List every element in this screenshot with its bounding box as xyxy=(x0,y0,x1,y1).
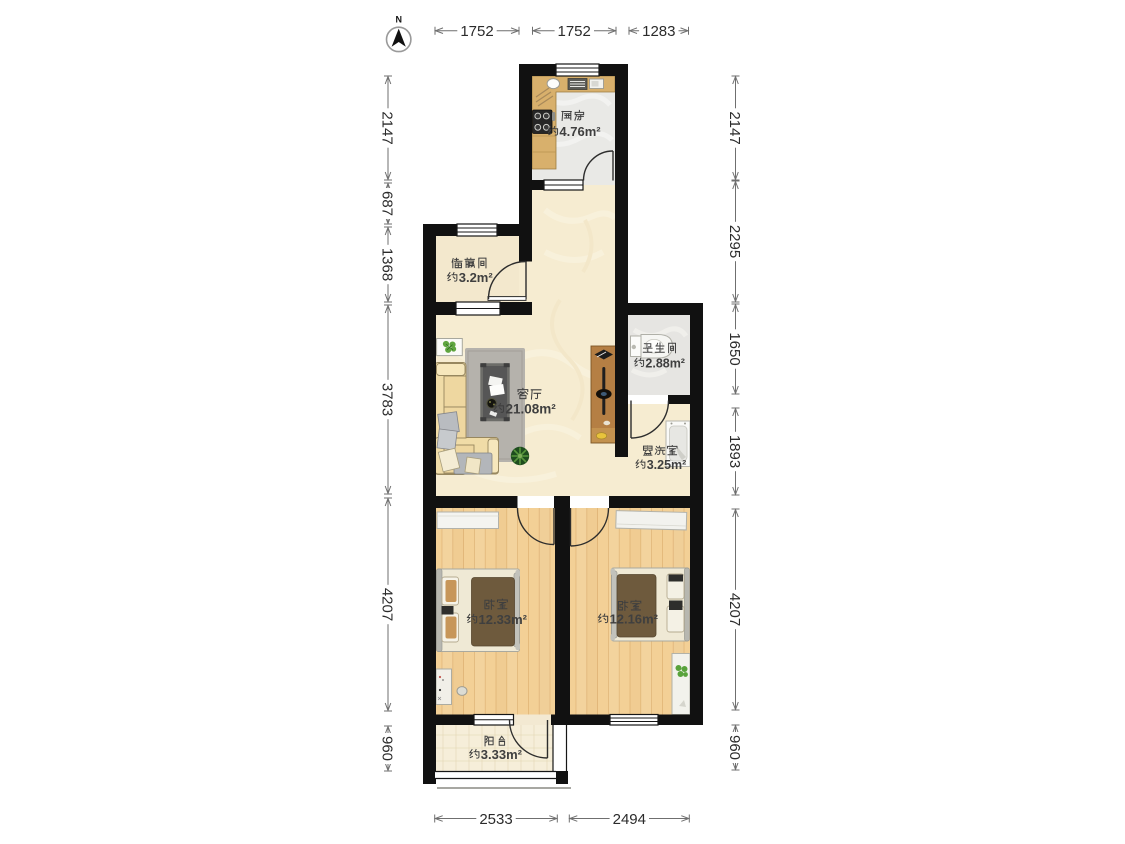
svg-text:m²: m² xyxy=(670,357,685,371)
svg-text:1752: 1752 xyxy=(460,23,493,40)
svg-text:3.2: 3.2 xyxy=(459,270,477,285)
svg-text:1752: 1752 xyxy=(558,23,591,40)
svg-text:4207: 4207 xyxy=(726,593,743,626)
svg-text:1368: 1368 xyxy=(379,248,396,281)
svg-text:4207: 4207 xyxy=(379,588,396,621)
svg-text:687: 687 xyxy=(379,191,396,216)
svg-text:2.88: 2.88 xyxy=(645,357,669,371)
svg-text:2147: 2147 xyxy=(379,111,396,144)
svg-text:960: 960 xyxy=(726,735,743,760)
svg-text:2533: 2533 xyxy=(479,811,512,828)
svg-text:960: 960 xyxy=(379,736,396,761)
svg-text:m²: m² xyxy=(477,270,494,285)
svg-text:3.33: 3.33 xyxy=(481,747,506,762)
svg-text:m²: m² xyxy=(539,402,556,417)
svg-text:N: N xyxy=(395,15,402,25)
svg-text:3.25: 3.25 xyxy=(647,458,671,472)
svg-text:m²: m² xyxy=(511,612,528,627)
svg-text:2147: 2147 xyxy=(726,111,743,144)
svg-text:1893: 1893 xyxy=(726,435,743,468)
svg-text:12.33: 12.33 xyxy=(479,612,512,627)
svg-text:12.16: 12.16 xyxy=(610,612,643,627)
svg-text:4.76: 4.76 xyxy=(559,124,584,139)
svg-text:2295: 2295 xyxy=(726,225,743,258)
svg-text:3783: 3783 xyxy=(379,383,396,416)
svg-text:m²: m² xyxy=(506,747,523,762)
svg-text:1650: 1650 xyxy=(726,332,743,365)
svg-text:2494: 2494 xyxy=(613,811,646,828)
svg-text:21.08: 21.08 xyxy=(506,402,540,417)
svg-text:m²: m² xyxy=(585,124,602,139)
svg-text:1283: 1283 xyxy=(642,23,675,40)
svg-text:m²: m² xyxy=(671,458,686,472)
svg-text:m²: m² xyxy=(642,612,659,627)
